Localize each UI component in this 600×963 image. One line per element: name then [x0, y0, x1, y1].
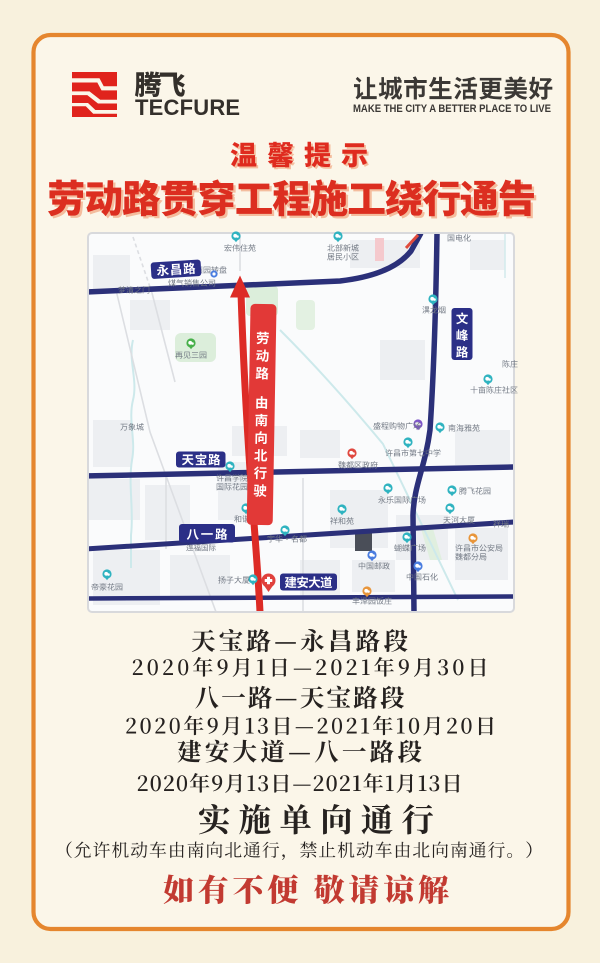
- svg-text:TECFURE: TECFURE: [135, 95, 240, 120]
- svg-text:MAKE THE CITY A BETTER PLACE T: MAKE THE CITY A BETTER PLACE TO LIVE: [353, 103, 551, 115]
